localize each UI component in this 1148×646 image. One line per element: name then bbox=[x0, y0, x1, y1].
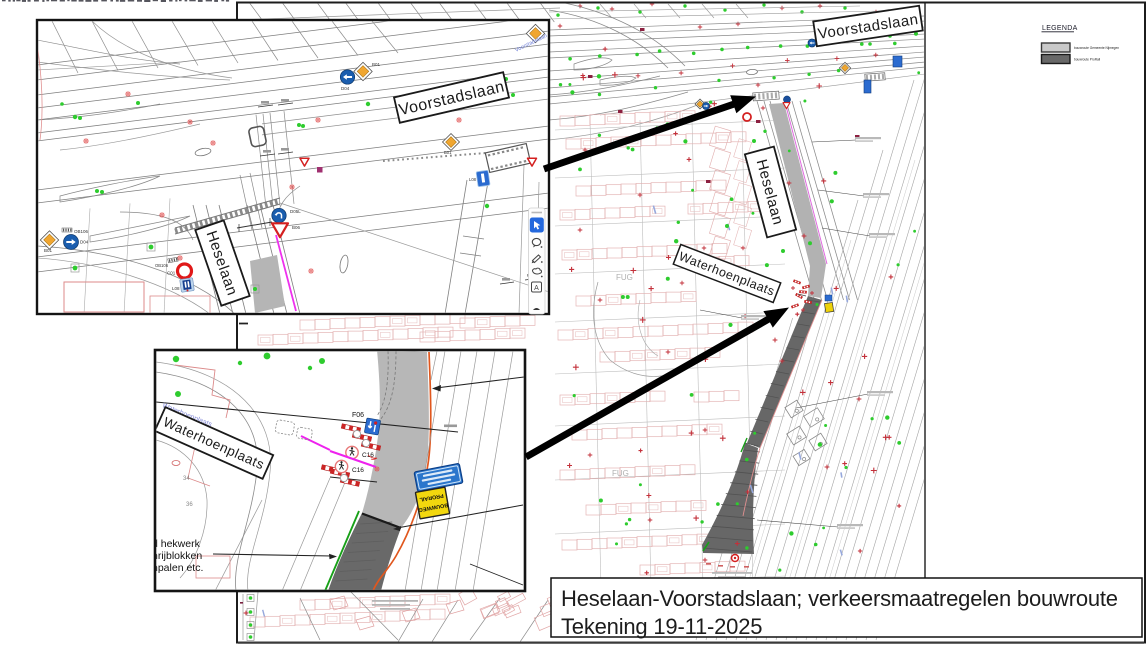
svg-text:npalen etc.: npalen etc. bbox=[152, 562, 203, 574]
svg-text:Tekening 19-11-2025: Tekening 19-11-2025 bbox=[561, 614, 762, 639]
svg-text:F06: F06 bbox=[352, 412, 364, 419]
svg-text:34: 34 bbox=[183, 476, 190, 482]
svg-text:B01: B01 bbox=[372, 62, 381, 67]
svg-text:d hekwerk: d hekwerk bbox=[152, 538, 201, 550]
svg-text:C01: C01 bbox=[167, 271, 176, 276]
svg-text:FUG: FUG bbox=[616, 273, 633, 282]
svg-text:Heselaan-Voorstadslaan; verkee: Heselaan-Voorstadslaan; verkeersmaatrege… bbox=[561, 586, 1118, 611]
svg-text:D05L: D05L bbox=[290, 209, 301, 214]
svg-text:B01: B01 bbox=[444, 150, 452, 155]
svg-text:D04: D04 bbox=[80, 240, 89, 245]
svg-text:FUG: FUG bbox=[612, 469, 629, 478]
svg-text:bouwroute ProRail: bouwroute ProRail bbox=[1074, 57, 1101, 61]
svg-text:B01: B01 bbox=[44, 248, 53, 253]
svg-text:A: A bbox=[534, 285, 539, 292]
svg-text:OB106: OB106 bbox=[155, 263, 169, 268]
svg-text:LEGENDA: LEGENDA bbox=[1042, 25, 1078, 32]
svg-text:OB106: OB106 bbox=[74, 229, 89, 234]
svg-text:L08: L08 bbox=[469, 177, 477, 182]
svg-text:nrijblokken: nrijblokken bbox=[152, 550, 202, 562]
svg-text:bouwroute Gemeente Nijmegen: bouwroute Gemeente Nijmegen bbox=[1074, 46, 1119, 50]
svg-text:36: 36 bbox=[186, 502, 193, 508]
svg-text:L08: L08 bbox=[172, 286, 180, 291]
svg-text:D04: D04 bbox=[341, 86, 350, 91]
svg-text:B06: B06 bbox=[292, 225, 301, 230]
svg-text:C16: C16 bbox=[352, 467, 364, 474]
